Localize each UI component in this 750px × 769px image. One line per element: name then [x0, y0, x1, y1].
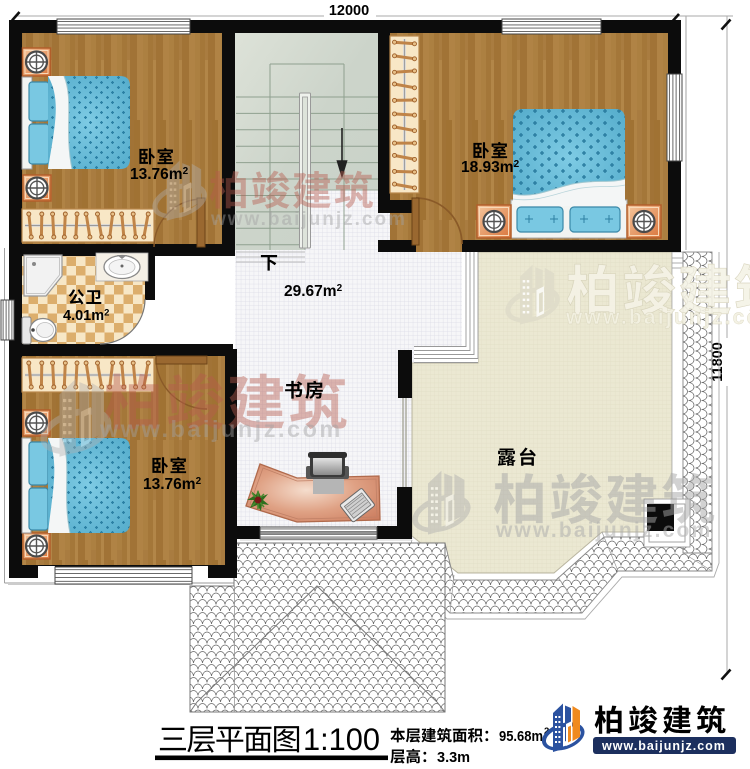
svg-text:95.68m: 95.68m: [499, 728, 543, 745]
svg-text:www.baijunjz.com: www.baijunjz.com: [565, 306, 750, 329]
svg-text:12000: 12000: [329, 3, 369, 19]
svg-text:29.67m2: 29.67m2: [284, 283, 343, 300]
svg-text:4.01m2: 4.01m2: [63, 308, 109, 325]
svg-text:13.76m2: 13.76m2: [143, 476, 202, 493]
svg-text:www.baijunjz.com: www.baijunjz.com: [210, 209, 407, 230]
svg-text:www.baijunjz.com: www.baijunjz.com: [99, 416, 343, 442]
svg-text:3.3m: 3.3m: [437, 750, 470, 766]
svg-text:18.93m2: 18.93m2: [461, 159, 520, 176]
svg-text:13.76m2: 13.76m2: [130, 166, 189, 183]
svg-text:www.baijunjz.com: www.baijunjz.com: [601, 739, 726, 753]
svg-text:www.baijunjz.com: www.baijunjz.com: [495, 519, 712, 542]
svg-text:1:100: 1:100: [303, 721, 380, 757]
